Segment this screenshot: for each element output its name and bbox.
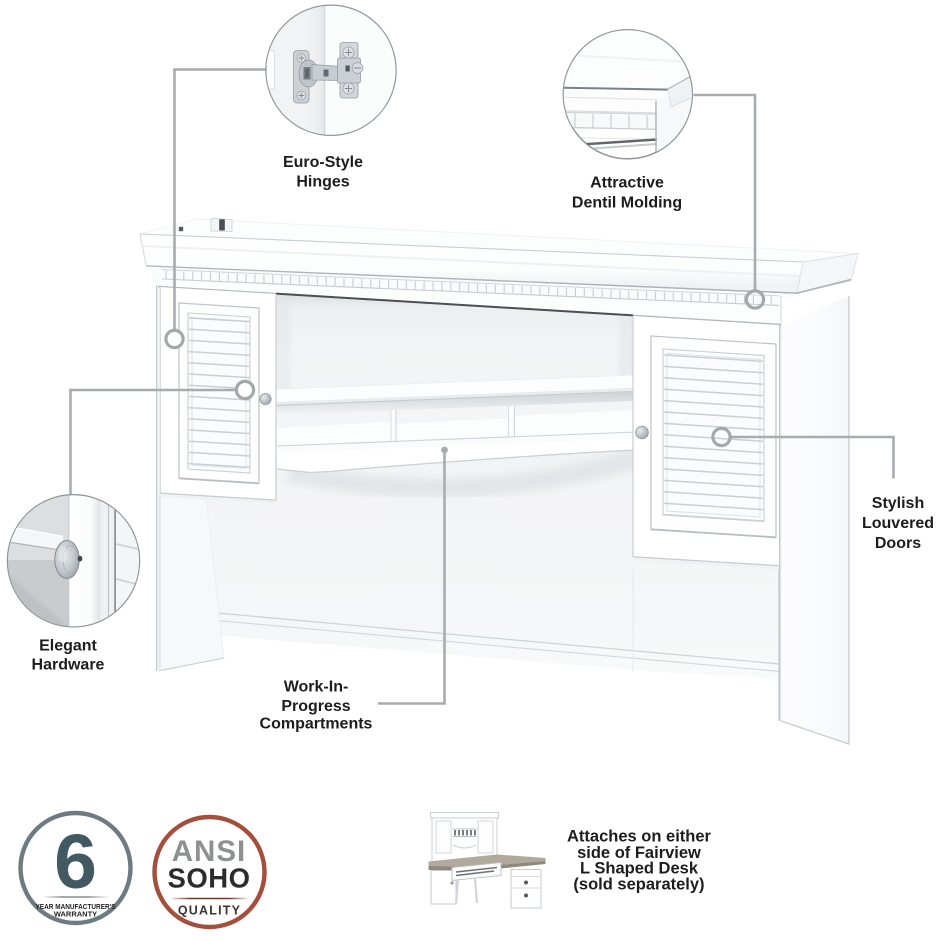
svg-text:Attaches on either: Attaches on either [567,828,712,846]
svg-text:(sold separately): (sold separately) [573,876,704,894]
svg-text:QUALITY: QUALITY [178,904,241,918]
svg-text:Dentil Molding: Dentil Molding [572,195,682,212]
svg-text:Compartments: Compartments [260,716,373,733]
svg-text:Louvered: Louvered [862,515,934,532]
svg-text:Elegant: Elegant [39,638,97,655]
svg-text:Attractive: Attractive [590,175,664,192]
svg-text:Hardware: Hardware [32,657,105,674]
svg-text:Stylish: Stylish [872,495,924,512]
svg-text:Euro-Style: Euro-Style [283,154,363,171]
svg-text:Hinges: Hinges [296,174,349,191]
svg-text:SOHO: SOHO [168,863,251,894]
svg-text:Work-In-: Work-In- [284,679,349,696]
svg-text:6: 6 [54,819,97,905]
svg-text:Progress: Progress [281,698,350,715]
svg-text:Doors: Doors [875,535,921,552]
svg-text:WARRANTY: WARRANTY [54,910,97,919]
